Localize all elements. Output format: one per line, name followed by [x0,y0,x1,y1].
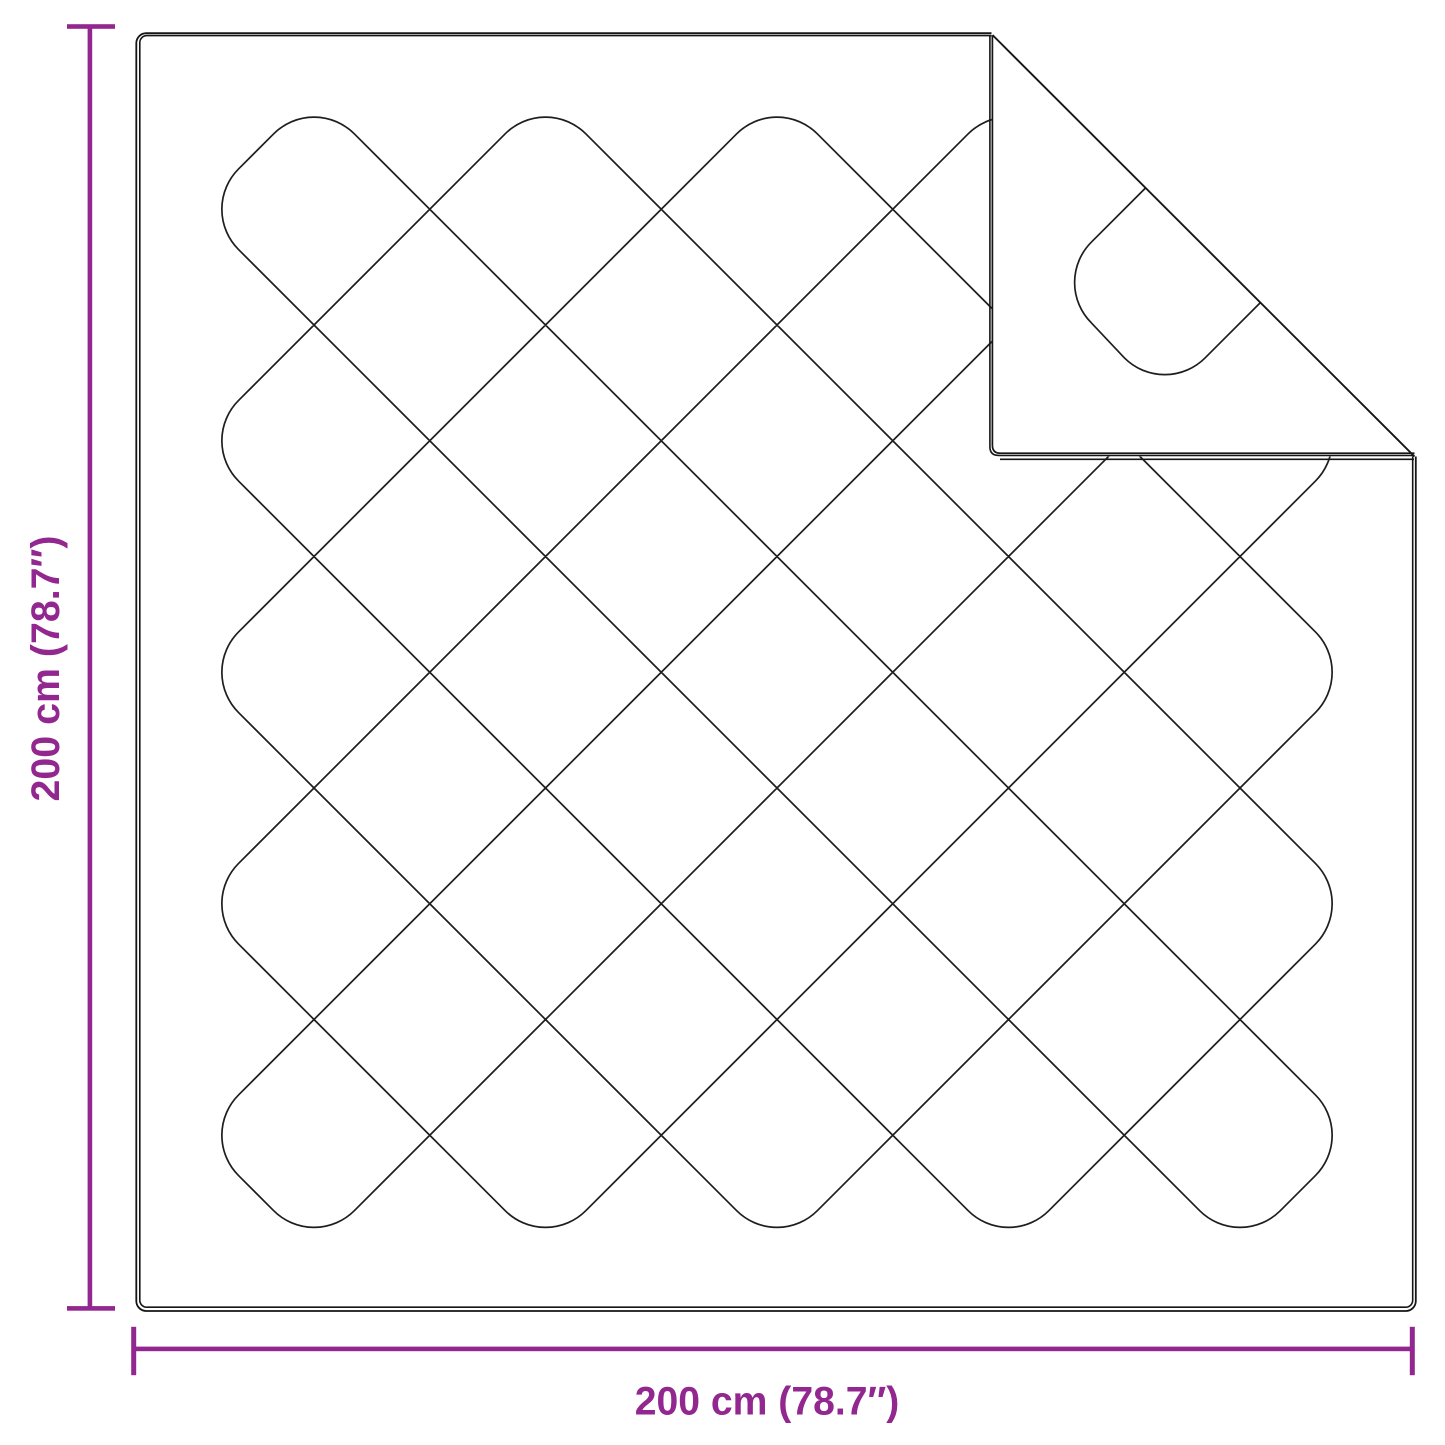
svg-text:200 cm (78.7″): 200 cm (78.7″) [24,536,68,802]
svg-text:200 cm (78.7″): 200 cm (78.7″) [635,1380,900,1424]
